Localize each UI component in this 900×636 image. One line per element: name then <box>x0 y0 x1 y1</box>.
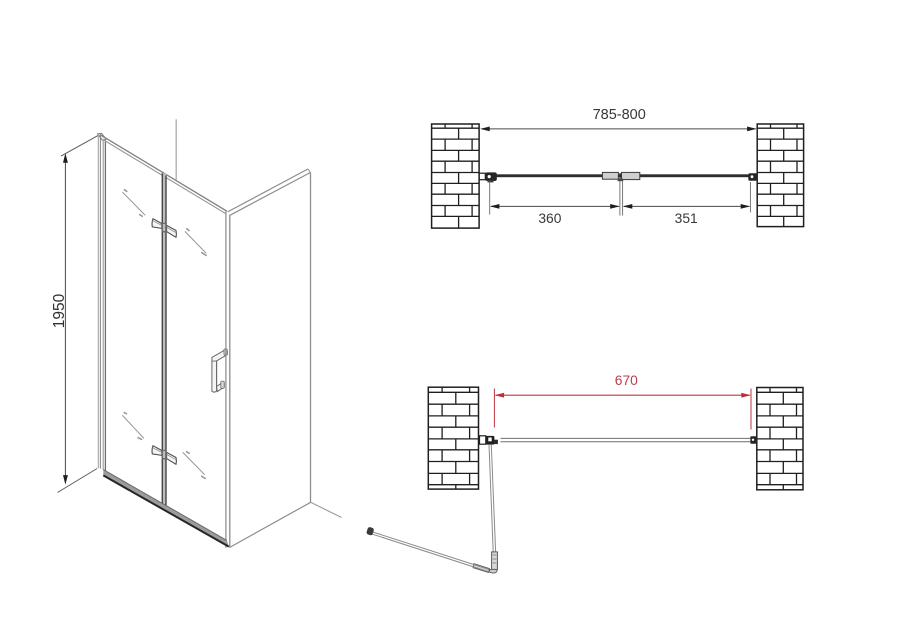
svg-text:785-800: 785-800 <box>593 107 646 123</box>
svg-text:670: 670 <box>615 373 638 388</box>
svg-text:360: 360 <box>538 211 561 226</box>
svg-text:351: 351 <box>675 211 698 226</box>
svg-text:1950: 1950 <box>51 293 68 328</box>
